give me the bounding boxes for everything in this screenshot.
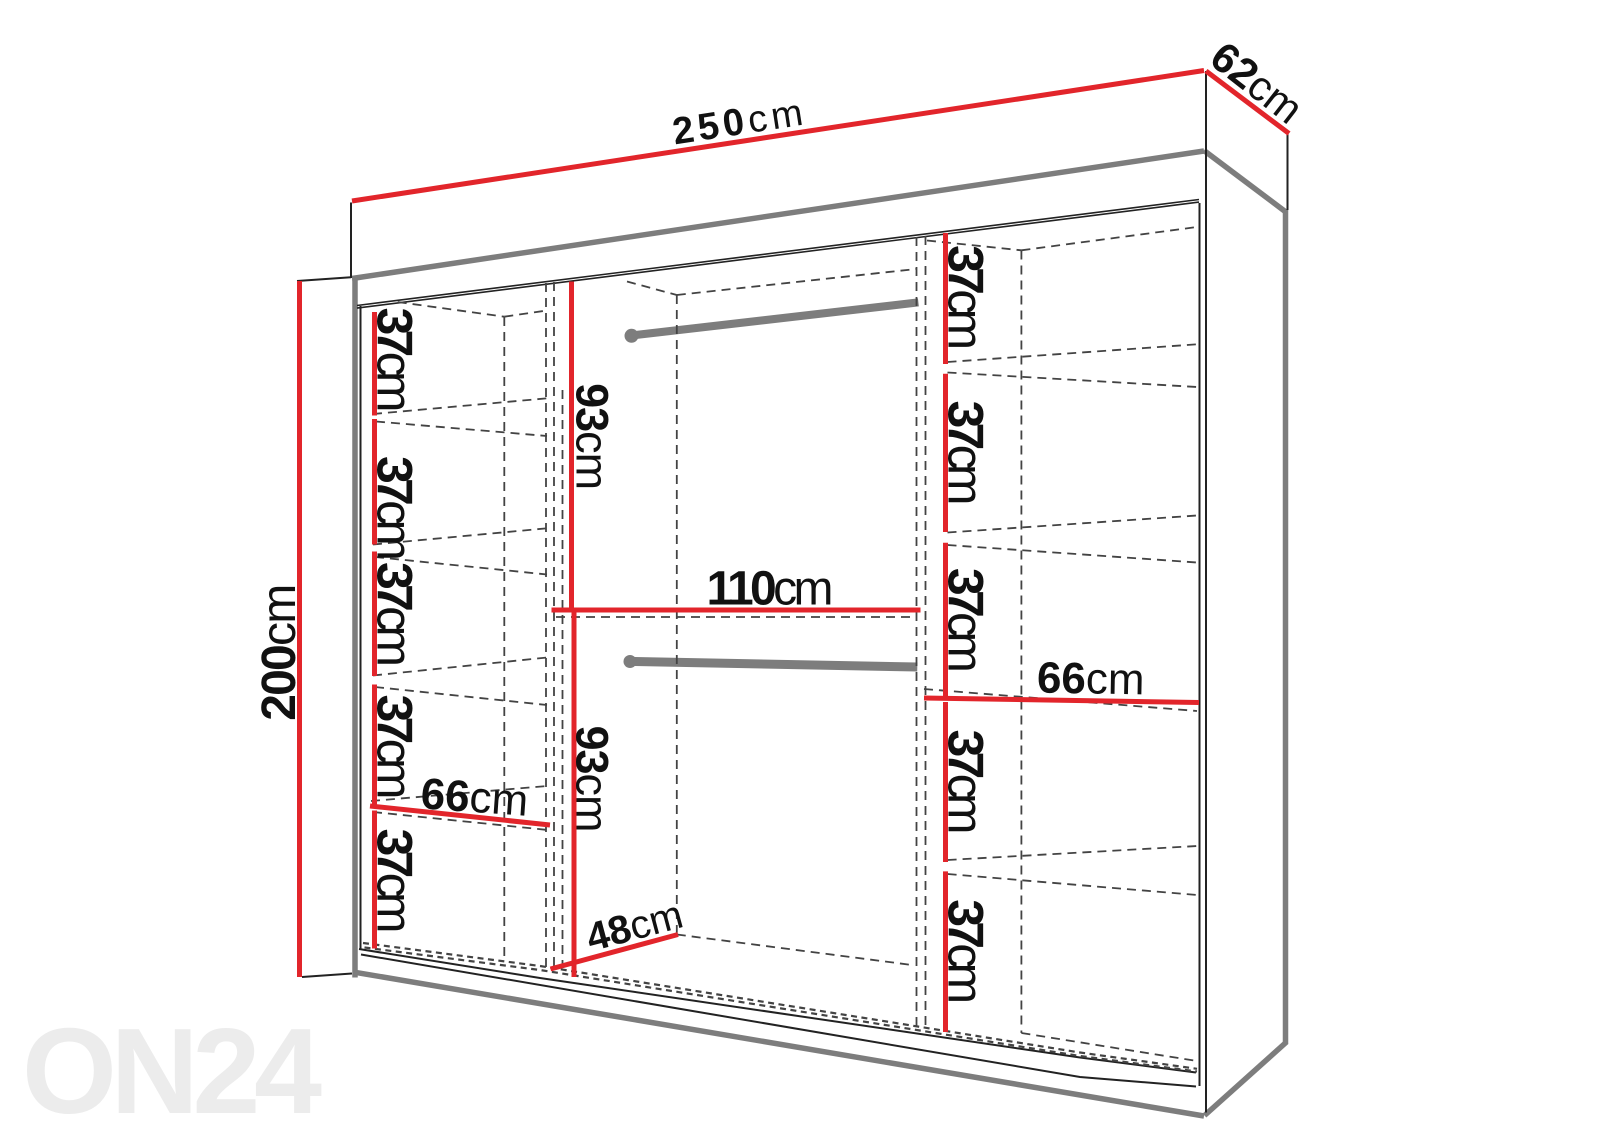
svg-text:66cm: 66cm: [1037, 654, 1145, 705]
svg-text:37cm: 37cm: [367, 562, 423, 667]
svg-text:37cm: 37cm: [938, 730, 994, 835]
svg-text:200cm: 200cm: [253, 584, 306, 721]
svg-text:66cm: 66cm: [419, 769, 530, 825]
svg-text:37cm: 37cm: [938, 245, 994, 350]
svg-text:37cm: 37cm: [367, 829, 423, 934]
svg-text:37cm: 37cm: [938, 899, 994, 1004]
svg-text:37cm: 37cm: [367, 308, 423, 413]
svg-text:ON24: ON24: [22, 1003, 322, 1139]
svg-text:37cm: 37cm: [938, 401, 994, 506]
svg-text:93cm: 93cm: [567, 383, 618, 490]
svg-text:93cm: 93cm: [567, 726, 618, 833]
svg-text:48cm: 48cm: [582, 893, 688, 961]
svg-text:110cm: 110cm: [707, 563, 834, 616]
svg-text:37cm: 37cm: [938, 568, 994, 673]
svg-text:37cm: 37cm: [367, 456, 423, 561]
svg-text:37cm: 37cm: [367, 695, 423, 800]
